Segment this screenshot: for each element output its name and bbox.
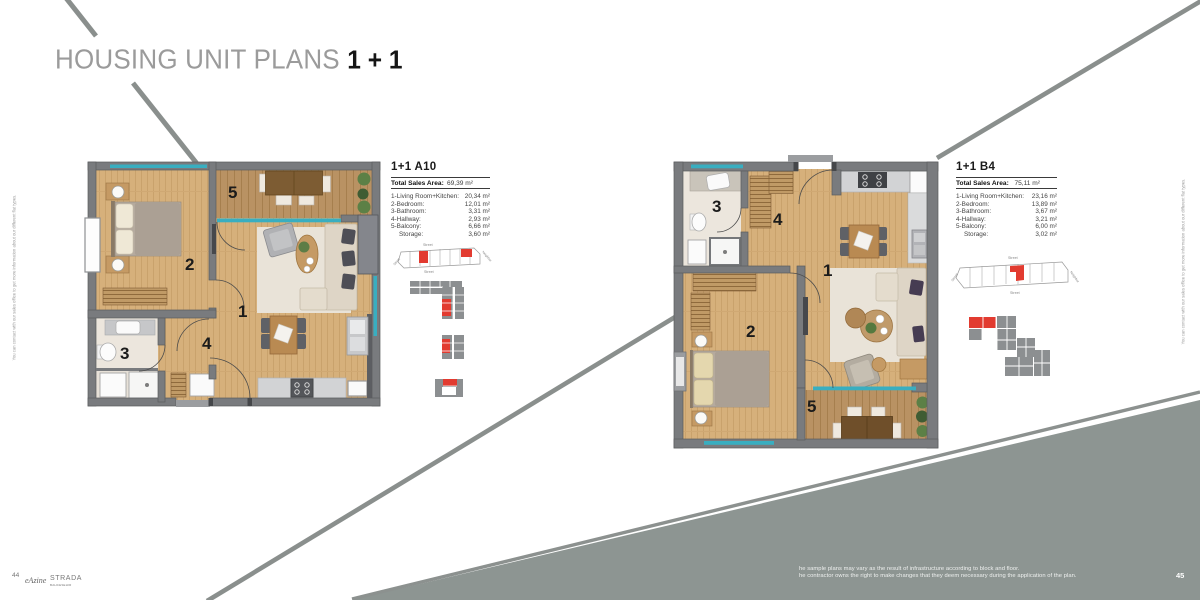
svg-text:Neighbor: Neighbor [481, 250, 493, 263]
svg-text:Street: Street [424, 270, 434, 274]
svg-text:5: 5 [228, 183, 237, 202]
svg-text:2: 2 [185, 255, 194, 274]
svg-text:Neighbor: Neighbor [1069, 270, 1080, 284]
svg-text:3: 3 [712, 197, 721, 216]
svg-text:Street: Street [1008, 256, 1018, 260]
svg-text:4: 4 [773, 210, 783, 229]
svg-text:3: 3 [120, 344, 129, 363]
svg-text:4: 4 [202, 334, 212, 353]
svg-text:Street: Street [1010, 291, 1020, 295]
svg-text:5: 5 [807, 397, 816, 416]
svg-text:1: 1 [823, 261, 832, 280]
svg-text:Street: Street [423, 243, 433, 247]
svg-text:1: 1 [238, 302, 247, 321]
svg-text:2: 2 [746, 322, 755, 341]
